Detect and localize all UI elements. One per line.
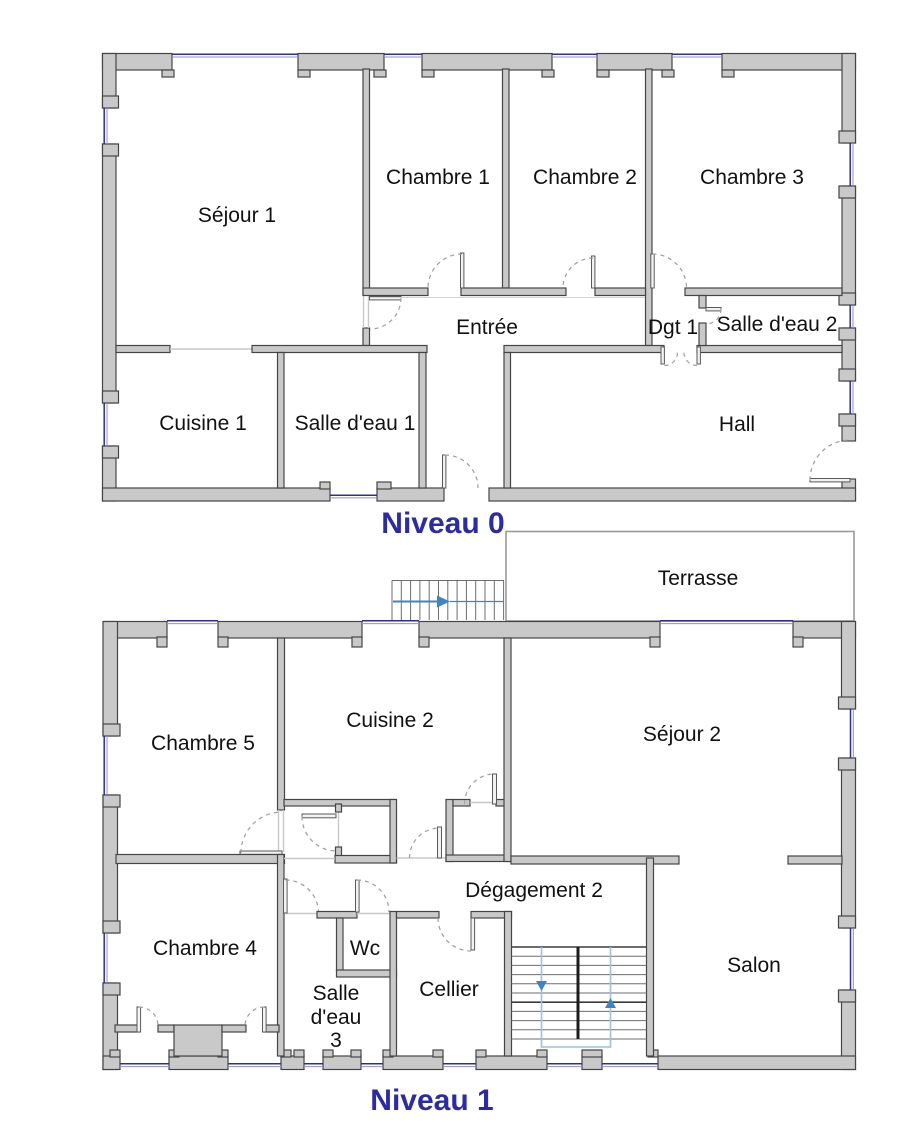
svg-text:Hall: Hall [719, 413, 755, 436]
svg-text:Séjour 2: Séjour 2 [643, 723, 721, 746]
svg-text:Entrée: Entrée [456, 316, 518, 339]
svg-text:Chambre 5: Chambre 5 [151, 732, 255, 755]
svg-text:Niveau 1: Niveau 1 [370, 1084, 493, 1117]
svg-text:Salon: Salon [727, 954, 781, 977]
svg-text:3: 3 [330, 1029, 342, 1052]
svg-text:Chambre 4: Chambre 4 [153, 937, 257, 960]
svg-text:d'eau: d'eau [311, 1006, 362, 1029]
svg-text:Dgt 1: Dgt 1 [648, 316, 698, 339]
svg-text:Chambre 3: Chambre 3 [700, 166, 804, 189]
svg-text:Terrasse: Terrasse [658, 567, 739, 590]
svg-text:Séjour 1: Séjour 1 [198, 204, 276, 227]
svg-text:Cellier: Cellier [419, 978, 479, 1001]
svg-text:Chambre 2: Chambre 2 [533, 166, 637, 189]
svg-text:Dégagement 2: Dégagement 2 [465, 879, 603, 902]
svg-text:Cuisine 2: Cuisine 2 [346, 709, 434, 732]
svg-text:Cuisine 1: Cuisine 1 [159, 412, 247, 435]
svg-text:Wc: Wc [350, 937, 380, 960]
svg-text:Salle d'eau 1: Salle d'eau 1 [295, 412, 416, 435]
svg-text:Niveau 0: Niveau 0 [381, 507, 504, 540]
svg-text:Salle d'eau 2: Salle d'eau 2 [717, 313, 838, 336]
svg-text:Salle: Salle [313, 982, 360, 1005]
svg-text:Chambre 1: Chambre 1 [386, 166, 490, 189]
